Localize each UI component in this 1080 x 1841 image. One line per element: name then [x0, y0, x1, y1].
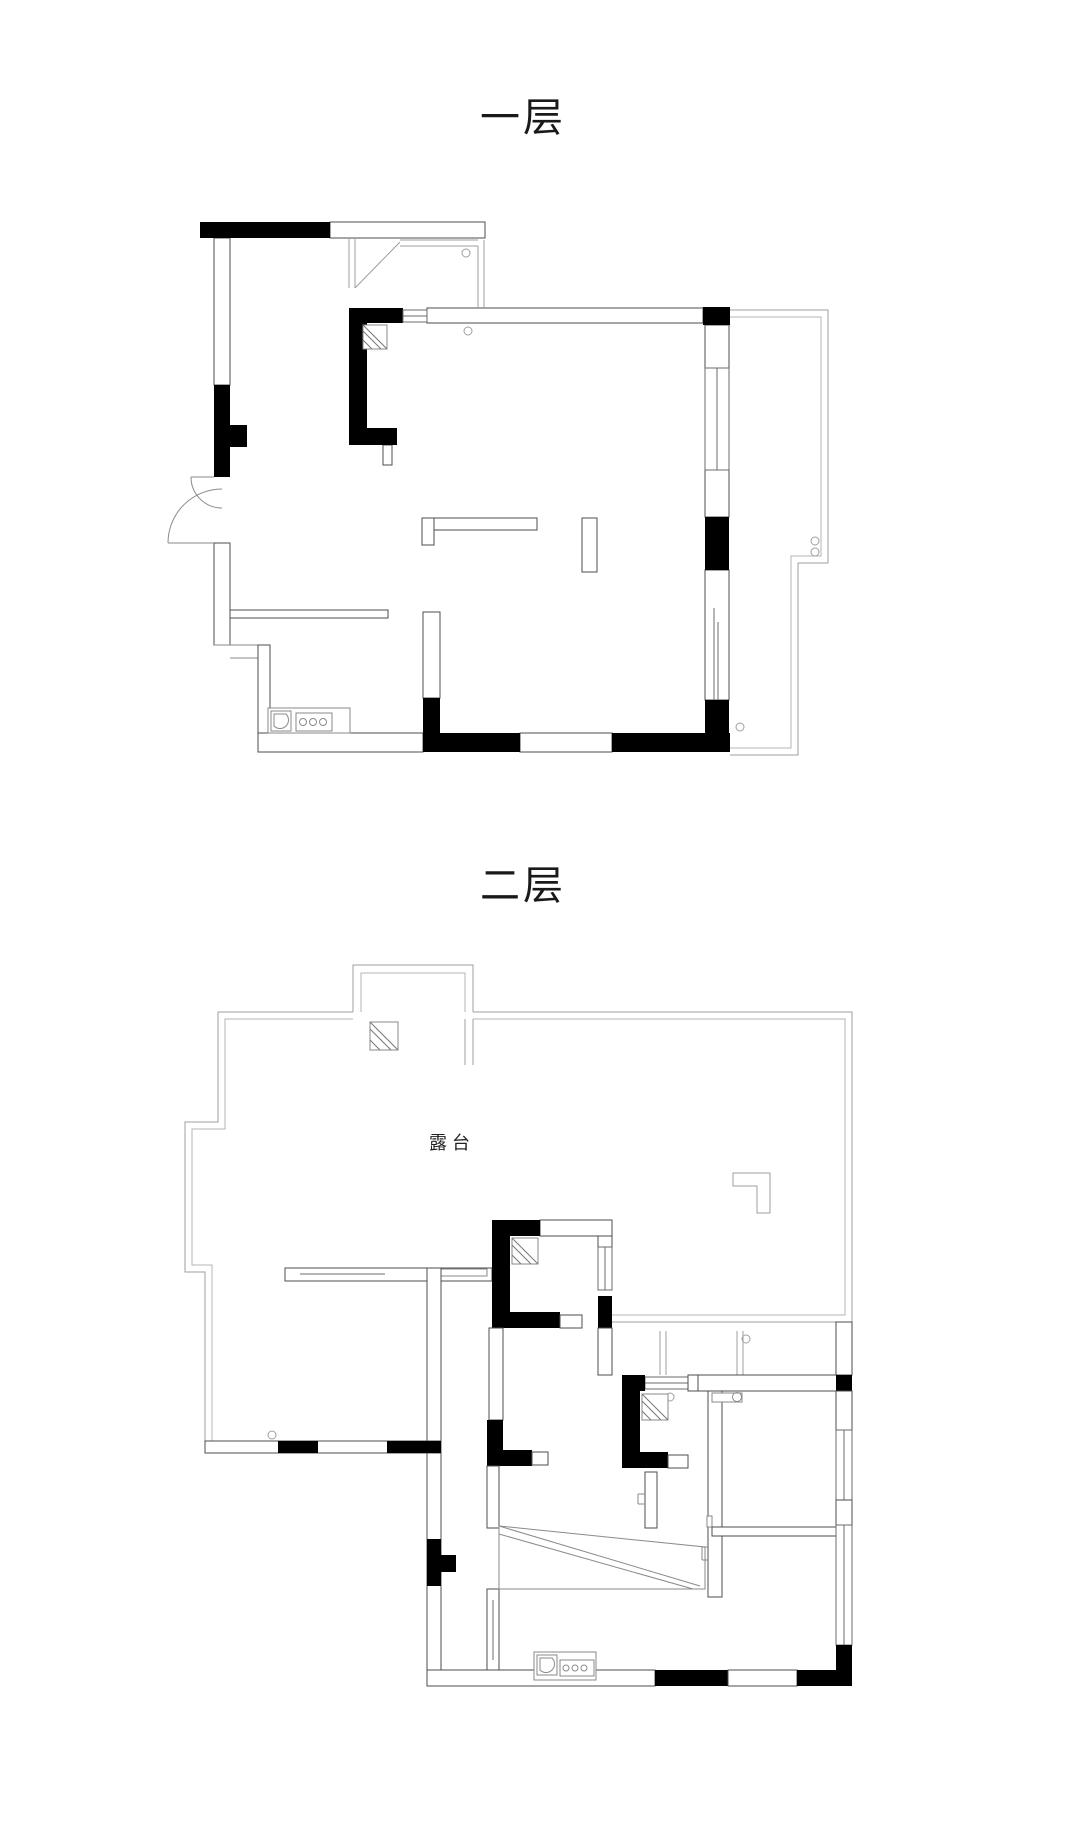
ceiling-light-icon: [462, 249, 470, 257]
terrace-corner-symbol: [733, 1173, 770, 1213]
terrace-label: 露台: [429, 1133, 475, 1154]
floor2-room-d: [622, 1375, 722, 1597]
sliding-door-leaf: [434, 1269, 487, 1276]
flue-icon: [512, 1238, 538, 1264]
floor2-plan: 露台: [185, 965, 852, 1686]
floor1-black-walls: [200, 222, 730, 752]
floor1-outline-walls: [214, 222, 729, 752]
pipe-icon: [811, 548, 819, 556]
flue-icon: [363, 325, 387, 349]
floor1-top-bay: [349, 238, 484, 308]
kitchen-sink-icon: [271, 711, 291, 731]
kitchen-counter: [268, 708, 350, 733]
floor2-right-wall: [836, 1322, 852, 1686]
fixture-icon: [712, 1393, 742, 1403]
small-circle-icon: [464, 327, 472, 335]
kitchen-counter: [534, 1652, 596, 1680]
stairs-icon: [499, 1526, 705, 1589]
flue-icon: [642, 1394, 668, 1420]
floor1-windows: [403, 310, 729, 700]
pipe-icon: [811, 537, 819, 545]
floor1-title: 一层: [480, 95, 566, 141]
stove-burners-icon: [296, 713, 332, 731]
entry-door-arc-icon: [168, 477, 222, 543]
floor2-title: 二层: [480, 863, 566, 909]
stove-burners-icon: [560, 1660, 594, 1676]
pipe-icon: [268, 1431, 276, 1439]
flue-icon: [370, 1022, 398, 1050]
floor2-room-a: [489, 1220, 612, 1420]
floor1-balcony-railing: [730, 310, 828, 755]
pipe-icon: [736, 723, 744, 731]
floor1-plan: [168, 222, 828, 755]
kitchen-sink-icon: [537, 1655, 557, 1675]
floor2-left-room: [205, 1268, 492, 1670]
floor-plan-page: 一层: [0, 0, 1080, 1841]
floor2-bottom-wall: [427, 1670, 852, 1686]
